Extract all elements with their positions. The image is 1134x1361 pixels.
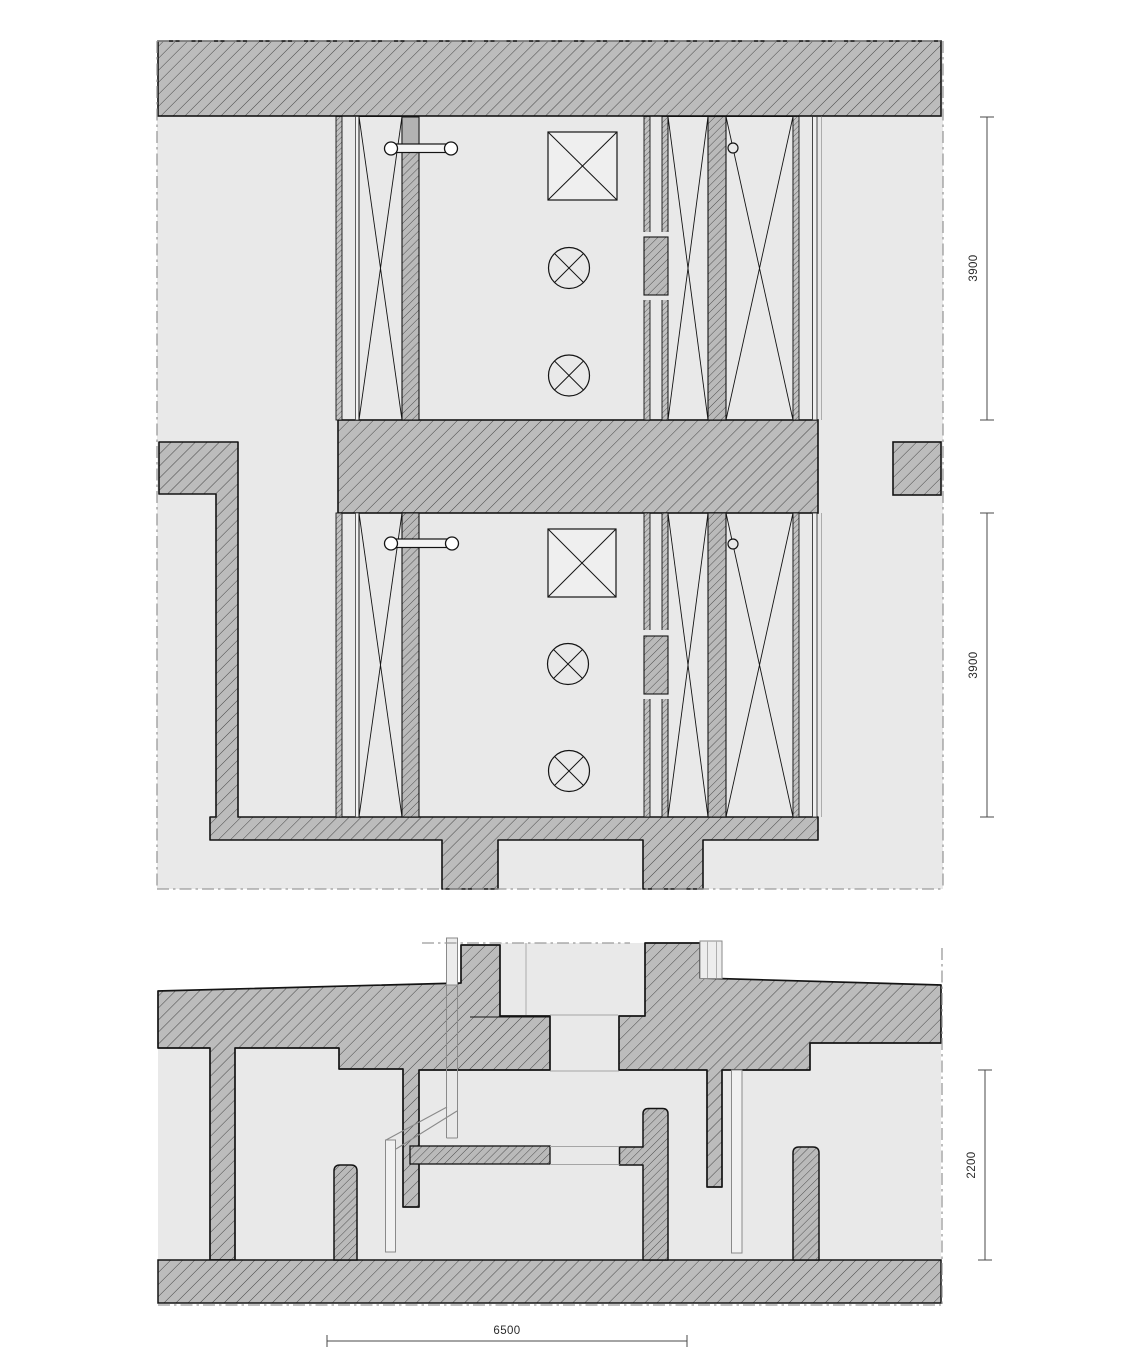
section-view: 2200 6500 bbox=[158, 938, 992, 1347]
board-strip bbox=[336, 513, 342, 817]
fixing-point-icon bbox=[728, 539, 738, 549]
board-strip bbox=[793, 117, 799, 421]
plan-middle-wall bbox=[338, 420, 818, 513]
section-parapet-band bbox=[410, 1146, 550, 1164]
lining-edge bbox=[813, 117, 818, 421]
luminaire-symbol bbox=[549, 355, 590, 396]
plan-view: 3900 3900 bbox=[157, 41, 994, 889]
section-wall-stub-left bbox=[334, 1165, 357, 1260]
dimension-label: 2200 bbox=[966, 1151, 978, 1178]
anchor-fixing-symbol bbox=[385, 537, 459, 550]
timber-stud bbox=[708, 117, 726, 421]
luminaire-symbol bbox=[549, 248, 590, 289]
plan-right-wall-stub bbox=[893, 442, 941, 495]
balustrade-panel bbox=[386, 1140, 396, 1252]
lining-edge bbox=[813, 513, 818, 817]
timber-stud bbox=[708, 513, 726, 817]
timber-stud bbox=[402, 513, 419, 817]
drawing-canvas: 3900 3900 bbox=[0, 0, 1134, 1361]
dimension-label: 3900 bbox=[968, 651, 980, 678]
plan-top-wall bbox=[158, 41, 941, 116]
vent-strip bbox=[700, 941, 722, 979]
blocking-piece bbox=[644, 237, 668, 295]
balustrade-panel bbox=[732, 1070, 743, 1253]
section-wall-stub-right bbox=[793, 1147, 819, 1260]
board-strip bbox=[336, 117, 342, 421]
dimension-plan-lower bbox=[980, 513, 994, 817]
dimension-label: 6500 bbox=[493, 1325, 520, 1337]
section-floor-slab bbox=[158, 1260, 941, 1303]
timber-stud bbox=[402, 117, 419, 421]
fixing-point-icon bbox=[728, 143, 738, 153]
board-strip bbox=[793, 513, 799, 817]
membrane-line bbox=[356, 117, 360, 421]
blocking-piece bbox=[644, 636, 668, 694]
dimension-plan-upper bbox=[980, 117, 994, 420]
recessed-band bbox=[500, 943, 645, 1015]
membrane-line bbox=[356, 513, 360, 817]
dimension-section-height bbox=[978, 1070, 992, 1260]
drawing-sheet: 3900 3900 bbox=[0, 0, 1134, 1361]
luminaire-symbol bbox=[549, 751, 590, 792]
junction-box-symbol bbox=[548, 529, 616, 597]
junction-box-symbol bbox=[548, 132, 617, 200]
dimension-label: 3900 bbox=[968, 254, 980, 281]
anchor-fixing-symbol bbox=[385, 142, 458, 155]
luminaire-symbol bbox=[548, 644, 589, 685]
